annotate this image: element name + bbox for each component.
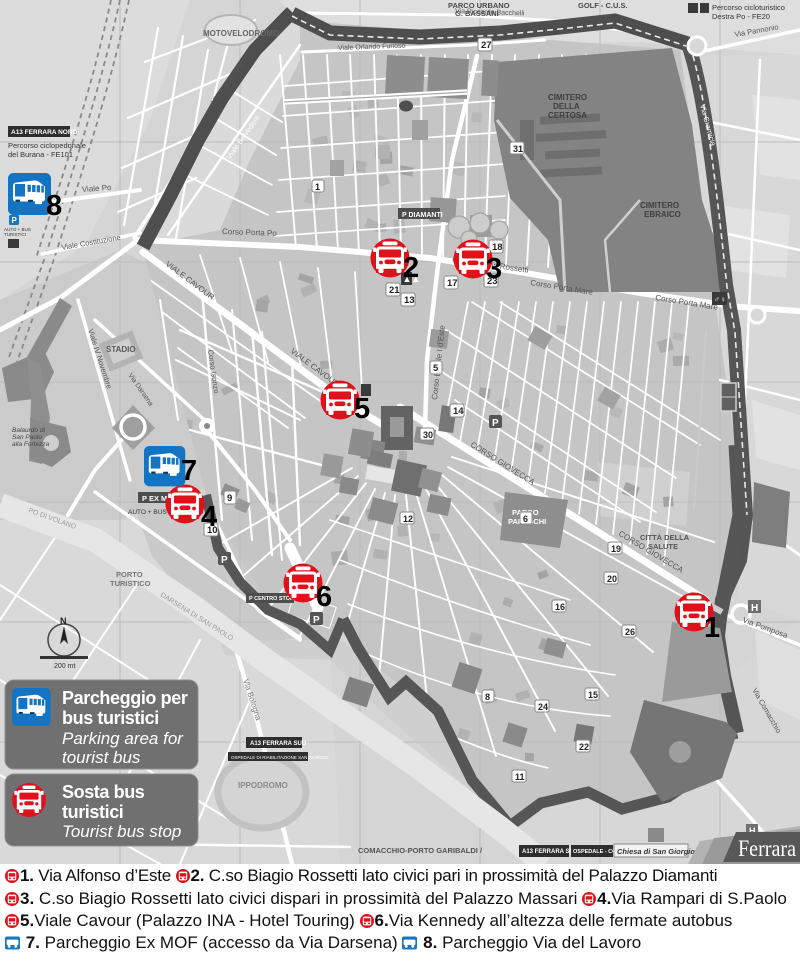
svg-text:1: 1	[315, 182, 320, 192]
svg-text:19: 19	[611, 544, 621, 554]
svg-text:MOTOVELODROMO: MOTOVELODROMO	[203, 29, 279, 38]
svg-text:H: H	[751, 603, 758, 614]
svg-text:200 mt: 200 mt	[54, 663, 75, 670]
svg-text:CIMITERO: CIMITERO	[640, 201, 679, 210]
svg-text:24: 24	[538, 702, 548, 712]
svg-text:27: 27	[481, 40, 492, 51]
svg-text:TURISTICO: TURISTICO	[110, 579, 151, 588]
svg-text:31: 31	[513, 144, 523, 154]
svg-text:A13 FERRARA SUD: A13 FERRARA SUD	[250, 741, 307, 747]
svg-text:P: P	[492, 418, 499, 429]
svg-text:P: P	[313, 615, 320, 626]
svg-text:Percorso cicloturistico: Percorso cicloturistico	[712, 3, 785, 12]
svg-text:COMACCHIO-PORTO GARIBALDI /: COMACCHIO-PORTO GARIBALDI /	[358, 846, 483, 855]
svg-text:20: 20	[607, 574, 617, 584]
svg-text:IPPODROMO: IPPODROMO	[238, 781, 288, 790]
svg-text:PORTO: PORTO	[116, 570, 143, 579]
svg-text:6: 6	[316, 581, 332, 613]
svg-text:♂♀: ♂♀	[714, 295, 726, 304]
svg-text:A13 FERRARA SUD: A13 FERRARA SUD	[522, 849, 579, 855]
svg-text:STADIO: STADIO	[106, 345, 136, 354]
svg-text:tourist bus: tourist bus	[62, 748, 141, 767]
svg-text:alla Fortezza: alla Fortezza	[12, 441, 50, 448]
svg-text:18: 18	[492, 242, 503, 253]
svg-text:Percorso ciclopedonale: Percorso ciclopedonale	[8, 141, 86, 150]
svg-text:6: 6	[523, 514, 528, 524]
svg-text:P: P	[12, 216, 18, 225]
svg-text:del Burana - FE101: del Burana - FE101	[8, 150, 73, 159]
svg-text:CITTÀ DELLA: CITTÀ DELLA	[640, 533, 690, 542]
svg-text:DELLA: DELLA	[553, 102, 580, 111]
svg-text:9: 9	[227, 493, 232, 504]
svg-text:30: 30	[423, 430, 433, 440]
svg-text:21: 21	[389, 285, 400, 296]
svg-text:Sosta bus: Sosta bus	[62, 782, 145, 802]
svg-text:1: 1	[704, 612, 720, 644]
svg-text:14: 14	[453, 406, 464, 417]
svg-text:Corso Porta Po: Corso Porta Po	[222, 227, 278, 238]
svg-text:17: 17	[447, 278, 458, 289]
svg-text:N: N	[60, 616, 67, 626]
svg-text:bus turistici: bus turistici	[62, 708, 159, 728]
svg-text:8: 8	[46, 190, 62, 222]
svg-text:11: 11	[515, 772, 525, 782]
svg-text:4: 4	[201, 501, 217, 533]
svg-text:8: 8	[485, 692, 490, 702]
svg-text:3: 3	[486, 253, 502, 285]
svg-text:13: 13	[404, 295, 415, 306]
svg-text:Balaurdo di: Balaurdo di	[12, 427, 45, 434]
svg-text:5: 5	[354, 393, 370, 425]
svg-text:P DIAMANTI: P DIAMANTI	[402, 212, 443, 219]
svg-text:CIMITERO: CIMITERO	[548, 93, 587, 102]
svg-text:Tourist bus stop: Tourist bus stop	[62, 822, 181, 841]
svg-text:5: 5	[433, 363, 439, 374]
svg-text:Chiesa di San Giorgio 7: Chiesa di San Giorgio 7	[617, 847, 702, 856]
svg-text:22: 22	[579, 742, 589, 752]
svg-text:Parking area for: Parking area for	[62, 729, 184, 748]
svg-text:16: 16	[555, 602, 565, 612]
svg-text:Parcheggio per: Parcheggio per	[62, 688, 188, 708]
svg-text:TURISTICI: TURISTICI	[4, 232, 26, 237]
svg-text:26: 26	[625, 627, 635, 637]
svg-text:15: 15	[588, 690, 598, 700]
svg-text:OSPEDALE DI RIABILITAZIONE SAN: OSPEDALE DI RIABILITAZIONE SAN GIORGIO	[231, 755, 329, 760]
svg-text:Destra Po - FE20: Destra Po - FE20	[712, 12, 770, 21]
svg-text:Ferrara: Ferrara	[738, 836, 796, 861]
svg-text:turistici: turistici	[62, 802, 123, 822]
svg-text:San Paolo: San Paolo	[12, 434, 42, 441]
svg-text:CERTOSA: CERTOSA	[548, 111, 587, 120]
svg-text:GOLF - C.U.S.: GOLF - C.U.S.	[578, 1, 628, 10]
svg-text:EBRAICO: EBRAICO	[644, 210, 681, 219]
svg-text:A13 FERRARA NORD: A13 FERRARA NORD	[11, 129, 78, 136]
svg-text:12: 12	[403, 514, 413, 524]
svg-text:2: 2	[403, 252, 419, 284]
svg-text:7: 7	[181, 455, 197, 487]
svg-text:P: P	[221, 555, 228, 566]
